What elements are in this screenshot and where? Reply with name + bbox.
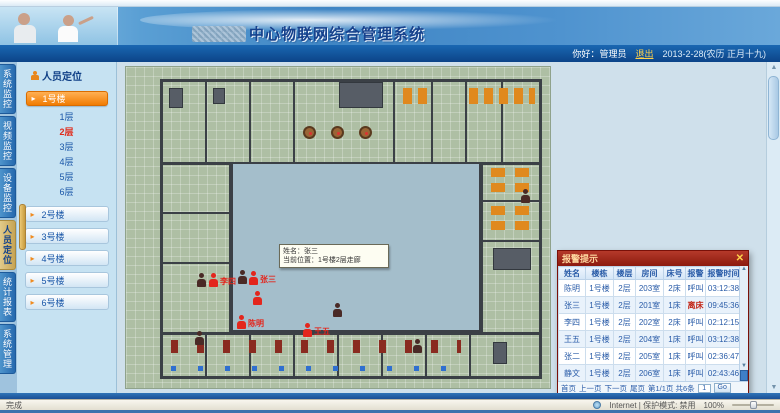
floor-link-2[interactable]: 2层 [17,125,116,140]
page-number-input[interactable] [698,384,711,393]
person-icon [31,71,39,80]
photo-person [58,15,78,42]
person-icon[interactable] [521,189,530,203]
floor-link-3[interactable]: 3层 [17,140,116,155]
wall [163,332,539,335]
scroll-up-icon[interactable]: ▲ [740,266,748,272]
close-icon[interactable]: ✕ [736,254,744,264]
person-info-tooltip: 姓名：张三 当前位置：1号楼2层走廊 [279,244,389,268]
tab-video-monitor[interactable]: 视频监控 [0,116,16,166]
popup-scrollbar[interactable]: ▲ ▼ [739,266,748,381]
col-alarm: 报警 [686,267,706,280]
floor-link-4[interactable]: 4层 [17,155,116,170]
table-row[interactable]: 李四1号楼2层202室2床呼叫02:12:15 [559,314,742,331]
wall [393,82,395,162]
zone-text: Internet | 保护模式: 禁用 [609,400,695,411]
alarm-person-label: 陈明 [248,318,264,329]
dining-table [303,126,316,139]
person-icon[interactable] [238,270,247,284]
person-icon[interactable] [195,331,204,345]
app-window: 中心物联网综合管理系统 你好：管理员 退出 2013-2-28(农历 正月十九)… [0,0,780,413]
browser-statusbar: 完成 Internet | 保护模式: 禁用 100% [0,399,780,410]
beds-column [491,206,505,234]
scroll-down-icon[interactable]: ▼ [769,384,779,391]
beds-row [171,366,461,371]
tooltip-line-2: 当前位置：1号楼2层走廊 [283,256,385,265]
banner-photo [0,7,118,45]
table-row[interactable]: 王五1号楼2层204室1床呼叫03:12:38 [559,331,742,348]
alarm-person-label: 张三 [260,274,276,285]
col-building: 楼栋 [586,267,614,280]
wall [293,82,295,162]
table-row[interactable]: 张三1号楼2层201室1床离床09:45:36 [559,297,742,314]
wall [481,165,483,332]
date-label: 2013-2-28(农历 正月十九) [662,47,766,60]
logout-link[interactable]: 退出 [635,47,653,60]
tab-statistics-report[interactable]: 统计报表 [0,272,16,322]
username: 管理员 [599,49,626,59]
greeting-label: 你好：管理员 [572,47,626,60]
status-left-text: 完成 [6,400,22,411]
col-floor: 楼层 [614,267,636,280]
page-prev-link[interactable]: 上一页 [579,383,602,394]
tab-system-management[interactable]: 系统管理 [0,324,16,374]
building-2-button[interactable]: 2号楼 [25,206,109,222]
page-info: 第1/1页 共6条 [648,383,695,394]
app-title: 中心物联网综合管理系统 [192,23,425,44]
page-go-button[interactable]: Go [714,383,731,393]
col-time: 报警时间 [706,267,742,280]
alarm-table: 姓名 楼栋 楼层 房间 床号 报警 报警时间 陈明1号楼2层203室2床呼叫03… [558,266,742,382]
col-name: 姓名 [559,267,586,280]
floor-link-1[interactable]: 1层 [17,110,116,125]
floor-list: 1层 2层 3层 4层 5层 6层 [17,110,116,200]
alarm-popup-title: 报警提示 [562,252,598,265]
floor-link-6[interactable]: 6层 [17,185,116,200]
sidebar-header-label: 人员定位 [42,68,82,83]
header-banner: 中心物联网综合管理系统 [0,7,780,45]
sidebar-panel: 人员定位 1号楼 1层 2层 3层 4层 5层 6层 2号楼 3号楼 4号楼 5… [17,62,117,393]
browser-chrome-strip [0,0,780,7]
wall [163,262,229,264]
scroll-up-icon[interactable]: ▲ [769,64,779,71]
furniture [493,342,507,364]
main-scrollbar[interactable]: ▲ ▼ [766,62,780,393]
alarm-person-icon[interactable] [253,291,262,305]
table-row[interactable]: 张二1号楼2层205室1床呼叫02:36:47 [559,348,742,365]
tab-system-monitor[interactable]: 系统监控 [0,64,16,114]
wall [431,82,433,162]
page-next-link[interactable]: 下一页 [605,383,628,394]
scrollbar-thumb[interactable] [740,370,748,381]
photo-person [14,13,36,43]
censored-title-prefix [192,26,246,42]
building-6-button[interactable]: 6号楼 [25,294,109,310]
tab-device-monitor[interactable]: 设备监控 [0,168,16,218]
building-1-button[interactable]: 1号楼 [26,91,108,106]
floorplan-canvas[interactable]: 李四 张三 陈明 王五 姓名：张三 当前位置：1号楼2层走廊 [125,66,551,389]
module-tab-bar: 系统监控 视频监控 设备监控 人员定位 统计报表 系统管理 [0,62,17,393]
wall [483,200,539,202]
alarm-person-icon[interactable]: 陈明 [237,315,246,329]
alarm-person-icon[interactable]: 李四 [209,273,218,287]
internet-zone-icon [593,401,601,409]
elevator-block [339,82,383,108]
alarm-person-label: 王五 [314,326,330,337]
building-5-button[interactable]: 5号楼 [25,272,109,288]
beds-row [469,88,535,104]
alarm-table-header: 姓名 楼栋 楼层 房间 床号 报警 报警时间 [559,267,742,280]
wall [483,240,539,242]
furniture [493,248,531,270]
sidebar-header: 人员定位 [31,68,116,83]
photo-arm [78,16,94,25]
app-title-text: 中心物联网综合管理系统 [249,23,425,44]
col-bed: 床号 [664,267,686,280]
person-icon[interactable] [333,303,342,317]
col-room: 房间 [636,267,664,280]
tab-personnel-location[interactable]: 人员定位 [0,220,16,270]
page-last-link[interactable]: 尾页 [630,383,645,394]
page-first-link[interactable]: 首页 [561,383,576,394]
alarm-person-icon[interactable]: 王五 [303,323,312,337]
scrollbar-thumb[interactable] [768,76,779,140]
building-outline [160,79,542,379]
alarm-person-icon[interactable]: 张三 [249,271,258,285]
building-4-button[interactable]: 4号楼 [25,250,109,266]
wall [205,82,207,162]
sidebar-collapse-grip[interactable] [19,204,26,250]
alarm-popup: 报警提示 ✕ 姓名 楼栋 楼层 房间 床号 报警 报警时间 [557,250,749,395]
beds-row [403,88,427,104]
beds-column [515,206,529,234]
table-row[interactable]: 陈明1号楼2层203室2床呼叫03:12:38 [559,280,742,297]
user-topbar: 你好：管理员 退出 2013-2-28(农历 正月十九) [0,45,780,62]
table-row[interactable]: 静文1号楼2层206室1床呼叫02:43:46 [559,365,742,382]
floor-link-5[interactable]: 5层 [17,170,116,185]
alarm-person-label: 李四 [220,276,236,287]
building-3-button[interactable]: 3号楼 [25,228,109,244]
wall [163,212,229,214]
dining-table [359,126,372,139]
beds-column [491,168,505,196]
zoom-slider[interactable] [732,404,774,406]
scroll-down-icon[interactable]: ▼ [740,363,748,369]
main-content: 李四 张三 陈明 王五 姓名：张三 当前位置：1号楼2层走廊 报警提示 [117,62,780,393]
tooltip-line-1: 姓名：张三 [283,247,385,256]
furniture [169,88,183,108]
dining-table [331,126,344,139]
furniture [213,88,225,104]
zoom-level[interactable]: 100% [704,401,724,410]
zoom-slider-knob[interactable] [750,401,757,409]
wall [465,82,467,162]
wall [249,82,251,162]
person-icon[interactable] [413,339,422,353]
person-icon[interactable] [197,273,206,287]
alarm-popup-titlebar[interactable]: 报警提示 ✕ [558,251,748,266]
wall [469,335,471,376]
